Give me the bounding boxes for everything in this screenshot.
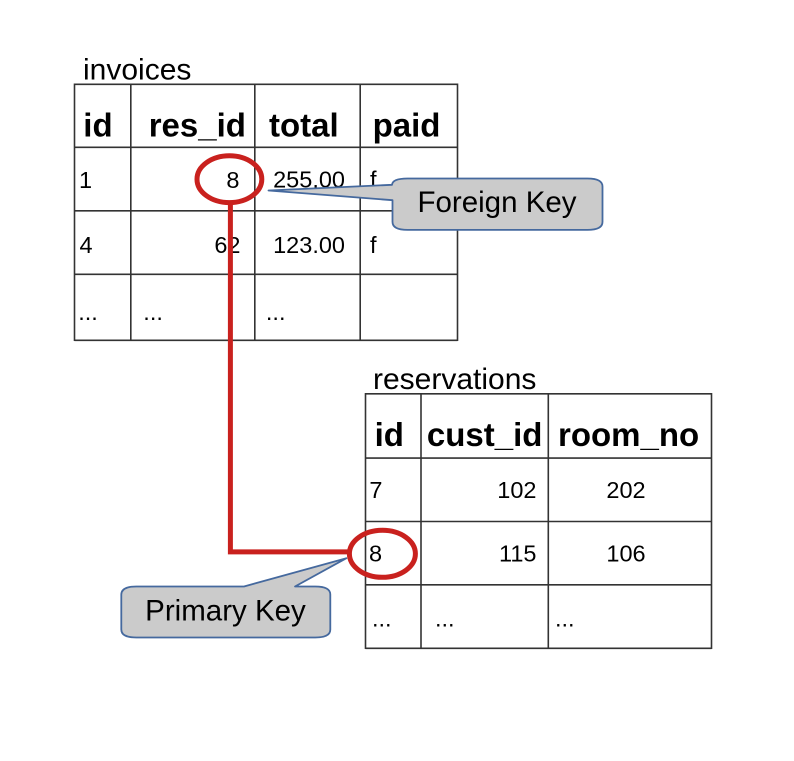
svg-text:cust_id: cust_id [427,416,543,453]
svg-text:id: id [83,106,112,143]
svg-text:7: 7 [369,477,382,503]
svg-text:Foreign Key: Foreign Key [417,186,576,219]
svg-text:...: ... [78,299,98,325]
svg-text:room_no: room_no [558,416,699,453]
svg-text:paid: paid [373,106,441,143]
svg-text:123.00: 123.00 [273,232,345,258]
svg-text:res_id: res_id [149,106,246,143]
svg-text:62: 62 [214,232,240,258]
svg-text:102: 102 [497,477,536,503]
svg-text:...: ... [555,606,575,632]
svg-text:...: ... [143,299,163,325]
svg-text:115: 115 [499,541,536,567]
svg-text:202: 202 [606,477,645,503]
svg-text:id: id [375,416,404,453]
svg-text:8: 8 [226,167,239,193]
svg-text:Primary Key: Primary Key [145,595,306,628]
svg-text:4: 4 [80,232,93,258]
svg-text:...: ... [266,299,286,325]
svg-text:f: f [370,232,377,258]
svg-text:8: 8 [369,541,382,567]
svg-text:106: 106 [606,541,645,567]
svg-text:1: 1 [79,167,92,193]
svg-text:reservations: reservations [373,363,536,396]
svg-text:...: ... [435,606,455,632]
svg-text:...: ... [372,606,392,632]
svg-text:invoices: invoices [83,54,191,87]
svg-text:total: total [269,106,339,143]
